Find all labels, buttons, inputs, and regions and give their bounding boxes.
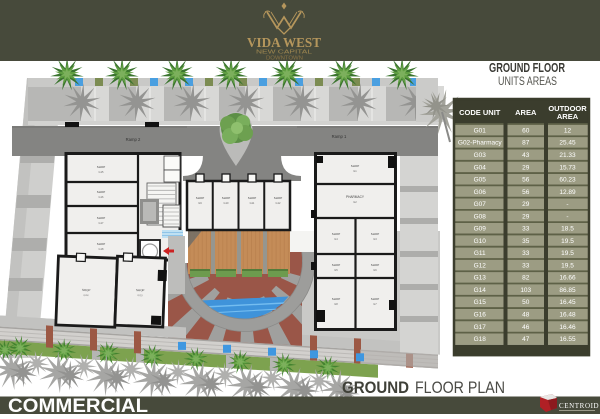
- svg-text:56: 56: [522, 177, 530, 184]
- svg-text:60.23: 60.23: [559, 177, 576, 184]
- svg-text:SHOP: SHOP: [274, 196, 283, 200]
- svg-text:PHARMACY: PHARMACY: [346, 195, 365, 199]
- svg-text:18.5: 18.5: [561, 226, 574, 233]
- svg-text:48: 48: [522, 311, 530, 318]
- svg-text:G15: G15: [99, 170, 104, 174]
- svg-text:19.5: 19.5: [561, 238, 574, 245]
- svg-text:16.46: 16.46: [559, 324, 576, 331]
- svg-text:SHOP: SHOP: [351, 164, 360, 168]
- svg-text:33: 33: [522, 250, 530, 257]
- svg-text:21.33: 21.33: [559, 152, 576, 159]
- svg-text:25.45: 25.45: [559, 140, 576, 147]
- svg-text:G11: G11: [250, 201, 255, 205]
- svg-text:GROUND FLOOR: GROUND FLOOR: [489, 60, 565, 75]
- svg-text:SHOP: SHOP: [332, 297, 341, 301]
- svg-text:35: 35: [522, 238, 530, 245]
- svg-text:DOWNTOWN: DOWNTOWN: [266, 56, 303, 62]
- svg-text:G8: G8: [334, 302, 338, 306]
- svg-text:COMMERCIAL: COMMERCIAL: [8, 395, 148, 414]
- svg-text:16.48: 16.48: [559, 311, 576, 318]
- svg-text:82: 82: [522, 275, 530, 282]
- svg-text:G17: G17: [474, 324, 487, 331]
- svg-text:56: 56: [522, 189, 530, 196]
- svg-text:29: 29: [522, 201, 530, 208]
- svg-text:AREA: AREA: [515, 108, 537, 117]
- svg-text:16.45: 16.45: [559, 299, 576, 306]
- svg-text:G15: G15: [474, 299, 487, 306]
- svg-text:G10: G10: [474, 238, 487, 245]
- svg-text:G05: G05: [474, 177, 487, 184]
- svg-text:G13: G13: [474, 275, 487, 282]
- svg-text:G1: G1: [353, 169, 357, 173]
- svg-text:SHOP: SHOP: [332, 232, 341, 236]
- svg-text:G02-Pharmacy: G02-Pharmacy: [458, 140, 502, 147]
- svg-text:G12: G12: [474, 262, 487, 269]
- svg-text:G03: G03: [474, 152, 487, 159]
- svg-text:16.55: 16.55: [559, 336, 576, 343]
- svg-text:87: 87: [522, 140, 530, 147]
- svg-text:G01: G01: [474, 127, 487, 134]
- svg-text:G17: G17: [99, 221, 104, 225]
- svg-text:-: -: [566, 213, 568, 220]
- svg-text:46: 46: [522, 324, 530, 331]
- svg-text:VIDA WEST: VIDA WEST: [247, 35, 321, 50]
- svg-text:CODE UNIT: CODE UNIT: [459, 108, 501, 117]
- svg-text:SHOP: SHOP: [371, 232, 380, 236]
- svg-text:G4: G4: [334, 237, 338, 241]
- svg-text:G10: G10: [224, 201, 229, 205]
- svg-text:SHOP: SHOP: [136, 288, 145, 292]
- svg-text:SHOP: SHOP: [196, 196, 205, 200]
- svg-text:G7: G7: [373, 302, 377, 306]
- svg-text:33: 33: [522, 262, 530, 269]
- svg-text:15.73: 15.73: [559, 164, 576, 171]
- svg-text:SHOP: SHOP: [371, 297, 380, 301]
- svg-text:UNITS AREAS: UNITS AREAS: [498, 74, 557, 88]
- svg-text:SHOP: SHOP: [82, 288, 91, 292]
- svg-text:G6: G6: [373, 268, 377, 272]
- svg-text:G04: G04: [474, 164, 487, 171]
- svg-text:SHOP: SHOP: [222, 196, 231, 200]
- svg-text:G09: G09: [474, 226, 487, 233]
- svg-text:12: 12: [564, 127, 572, 134]
- svg-text:29: 29: [522, 213, 530, 220]
- svg-text:SHOP: SHOP: [97, 190, 106, 194]
- svg-text:G2: G2: [353, 200, 357, 204]
- svg-text:G18: G18: [474, 336, 487, 343]
- svg-text:Ramp 1: Ramp 1: [332, 134, 347, 139]
- svg-text:50: 50: [522, 299, 530, 306]
- svg-text:SHOP: SHOP: [97, 216, 106, 220]
- svg-text:SHOP: SHOP: [332, 263, 341, 267]
- svg-text:60: 60: [522, 127, 530, 134]
- svg-text:G16: G16: [474, 311, 487, 318]
- svg-text:G3: G3: [373, 237, 377, 241]
- svg-text:43: 43: [522, 152, 530, 159]
- svg-text:SHOP: SHOP: [97, 242, 106, 246]
- svg-text:G07: G07: [474, 201, 487, 208]
- svg-text:16.66: 16.66: [559, 275, 576, 282]
- svg-text:47: 47: [522, 336, 530, 343]
- svg-text:SHOP: SHOP: [248, 196, 257, 200]
- svg-text:G08: G08: [474, 213, 487, 220]
- svg-text:G16: G16: [99, 195, 104, 199]
- svg-text:Ramp 2: Ramp 2: [126, 137, 141, 142]
- svg-text:AREA: AREA: [557, 112, 579, 121]
- svg-text:29: 29: [522, 164, 530, 171]
- svg-text:G13: G13: [137, 293, 143, 297]
- svg-text:FLOOR PLAN: FLOOR PLAN: [415, 379, 505, 397]
- svg-text:12.89: 12.89: [559, 189, 576, 196]
- svg-text:G12: G12: [276, 201, 281, 205]
- svg-text:86.85: 86.85: [559, 287, 576, 294]
- svg-text:G06: G06: [474, 189, 487, 196]
- svg-text:19.5: 19.5: [561, 250, 574, 257]
- svg-text:GROUND: GROUND: [342, 379, 409, 397]
- svg-text:19.5: 19.5: [561, 262, 574, 269]
- svg-text:SHOP: SHOP: [371, 263, 380, 267]
- svg-text:-: -: [566, 201, 568, 208]
- svg-text:G18: G18: [99, 247, 104, 251]
- svg-text:G14: G14: [474, 287, 487, 294]
- svg-text:CENTROID: CENTROID: [559, 402, 599, 410]
- svg-text:SHOP: SHOP: [97, 165, 106, 169]
- svg-text:G11: G11: [474, 250, 486, 257]
- svg-text:G14: G14: [83, 293, 89, 297]
- svg-text:G9: G9: [198, 201, 202, 205]
- svg-text:103: 103: [520, 287, 531, 294]
- svg-text:G5: G5: [334, 268, 338, 272]
- svg-text:33: 33: [522, 226, 530, 233]
